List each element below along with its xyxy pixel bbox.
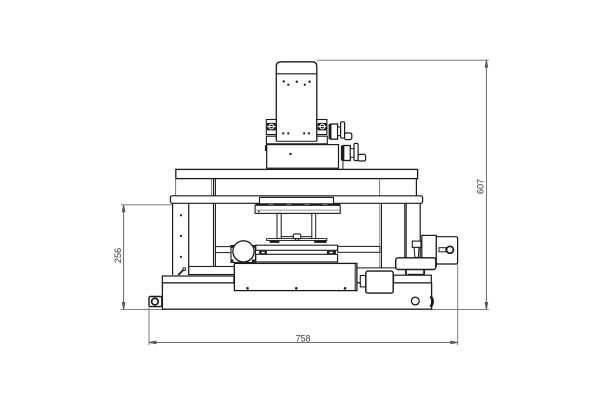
svg-text:256: 256 [113,248,123,263]
svg-text:607: 607 [476,179,486,194]
svg-text:758: 758 [296,333,311,343]
